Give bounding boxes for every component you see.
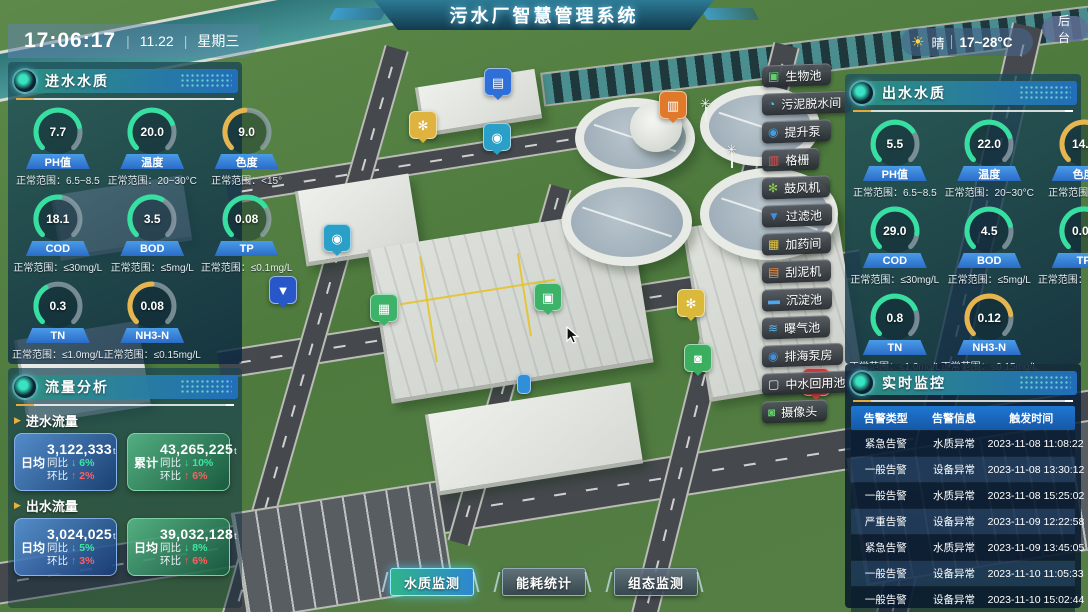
gauge-label: TP: [1052, 253, 1088, 268]
flow-tag: 日均: [19, 539, 47, 556]
compare-row: 同比↓6%: [47, 457, 112, 470]
facility-icon: ◔: [768, 98, 775, 110]
flow-body: 3,024,025t同比↓5%环比↑3%: [47, 526, 112, 568]
gauge-label: 色度: [1052, 166, 1088, 181]
panel-title: 出水水质: [866, 83, 946, 103]
flow-body: 3,122,333t同比↓6%环比↑2%: [47, 441, 112, 483]
gauge-温度: 22.0温度正常范围：20~30°C: [941, 116, 1038, 203]
gauge-label: PH值: [863, 166, 927, 181]
gauge-value: 9.0: [219, 104, 275, 160]
alarm-row: 一般告警设备异常2023-11-10 11:05:33: [851, 561, 1075, 586]
compare-value: 6%: [192, 470, 207, 483]
gauge-range: 正常范围：≤0.15mg/L: [104, 346, 201, 361]
flow-unit: t: [234, 446, 237, 456]
dewatering-marker[interactable]: ▤: [484, 68, 512, 96]
gauge-value: 0.08: [219, 191, 275, 247]
facility-icon: ◉: [768, 126, 778, 138]
outlet-gauges: 5.5PH值正常范围：6.5~8.522.0温度正常范围：20~30°C14.0…: [845, 112, 1081, 377]
dewatering-marker-icon: ▤: [492, 76, 504, 89]
filter-marker-icon: ▼: [277, 284, 290, 297]
compare-value: 3%: [79, 555, 94, 568]
flow-sections: ▶进水流量日均3,122,333t同比↓6%环比↑2%累计43,265,225t…: [8, 406, 242, 576]
section-header: 流量分析: [8, 368, 242, 402]
gauge-NH3-N: 0.08NH3-N正常范围：≤0.15mg/L: [104, 278, 201, 365]
inlet-gauges: 7.7PH值正常范围：6.5~8.520.0温度正常范围：20~30°C9.0色…: [8, 100, 242, 365]
section-header: 进水水质: [8, 62, 242, 96]
header-title-band: 污水厂智慧管理系统: [374, 0, 714, 30]
facility-label: 格栅: [785, 150, 809, 168]
alarm-row: 一般告警设备异常2023-11-10 15:02:44: [851, 587, 1075, 612]
bio-pool-marker[interactable]: ▣: [534, 283, 562, 311]
flow-tag: 累计: [132, 454, 160, 471]
alarm-time: 2023-11-10 15:02:44: [988, 594, 1075, 606]
down-arrow-icon: ↓: [71, 542, 76, 555]
gauge-range: 正常范围：≤1.0mg/L: [12, 346, 104, 361]
section-underline: [853, 400, 1073, 402]
facility-label: 摄像头: [781, 402, 817, 420]
flow-value: 3,024,025t: [47, 526, 112, 542]
alarm-time: 2023-11-08 15:25:02: [988, 490, 1075, 502]
admin-button[interactable]: 后台: [1042, 16, 1088, 42]
section-bullet-icon: [12, 68, 38, 94]
nav-button-label: 组态监测: [628, 573, 684, 592]
flow-cards: 日均3,024,025t同比↓5%环比↑3%日均39,032,128t同比↓8%…: [14, 518, 236, 576]
gauge-value: 7.7: [30, 104, 86, 160]
alarm-type: 紧急告警: [851, 436, 920, 451]
facility-icon: ▼: [768, 210, 780, 222]
column-alarm-time: 触发时间: [988, 410, 1075, 426]
facility-button-刮泥机[interactable]: ▤刮泥机: [762, 259, 831, 283]
facility-button-摄像头[interactable]: ◙摄像头: [762, 399, 827, 423]
alarm-info: 设备异常: [920, 462, 987, 477]
gauge-range: 正常范围：<15°: [211, 172, 282, 187]
clock-weekday: 星期三: [197, 31, 239, 51]
gauge-label: NH3-N: [957, 340, 1021, 355]
up-arrow-icon: ↑: [184, 555, 189, 568]
compare-label: 环比: [160, 555, 181, 568]
compare-label: 同比: [160, 457, 181, 470]
down-arrow-icon: ↓: [184, 457, 189, 470]
gauge-COD: 18.1COD正常范围：≤30mg/L: [12, 191, 104, 278]
flow-section-进水流量: ▶进水流量日均3,122,333t同比↓6%环比↑2%累计43,265,225t…: [8, 406, 242, 491]
compare-row: 同比↓5%: [47, 542, 112, 555]
gauge-value: 4.5: [961, 203, 1017, 259]
up-arrow-icon: ↑: [71, 555, 76, 568]
facility-button-提升泵[interactable]: ◉提升泵: [762, 119, 831, 143]
facility-button-沉淀池[interactable]: ▬沉淀池: [762, 287, 832, 311]
pump-marker[interactable]: ◉: [483, 123, 511, 151]
flow-value: 39,032,128t: [160, 526, 225, 542]
alarm-type: 一般告警: [851, 592, 920, 607]
gauge-BOD: 4.5BOD正常范围：≤5mg/L: [941, 203, 1038, 290]
alarm-type: 一般告警: [851, 566, 920, 581]
panel-title: 实时监控: [866, 373, 946, 393]
flow-analysis-panel: 流量分析 ▶进水流量日均3,122,333t同比↓6%环比↑2%累计43,265…: [8, 368, 242, 608]
gauge-range: 正常范围：6.5~8.5: [16, 172, 100, 187]
compare-label: 同比: [47, 457, 68, 470]
gauge-ring: 3.5: [124, 191, 180, 247]
compare-row: 环比↑6%: [160, 470, 225, 483]
blower-marker-2-icon: ✻: [686, 297, 697, 310]
facility-legend: ▣生物池◔污泥脱水间◉提升泵▥格栅✻鼓风机▼过滤池▦加药间▤刮泥机▬沉淀池≋曝气…: [762, 62, 855, 429]
camera-marker-icon: ◙: [694, 352, 702, 365]
realtime-monitor-panel: 实时监控 告警类型 告警信息 触发时间 紧急告警水质异常2023-11-08 1…: [845, 364, 1081, 608]
flow-body: 43,265,225t同比↓10%环比↑6%: [160, 441, 225, 483]
gauge-label: TN: [863, 340, 927, 355]
compare-row: 环比↑6%: [160, 555, 225, 568]
facility-icon: ≋: [768, 322, 778, 334]
alarm-time: 2023-11-09 12:22:58: [988, 516, 1075, 528]
compare-row: 同比↓10%: [160, 457, 225, 470]
alarm-info: 水质异常: [920, 436, 987, 451]
facility-button-格栅[interactable]: ▥格栅: [762, 148, 819, 172]
page-title: 污水厂智慧管理系统: [450, 2, 639, 28]
alarm-row: 一般告警设备异常2023-11-08 13:30:12: [851, 457, 1075, 482]
blower-marker-2[interactable]: ✻: [677, 289, 705, 317]
gauge-range: 正常范围：≤30mg/L: [13, 259, 102, 274]
gauge-range: 正常范围：6.5~8.5: [853, 184, 937, 199]
gauge-温度: 20.0温度正常范围：20~30°C: [104, 104, 201, 191]
blower-marker-icon: ✻: [418, 119, 429, 132]
flow-card-累计: 累计43,265,225t同比↓10%环比↑6%: [127, 433, 230, 491]
weather-condition: 晴: [931, 33, 944, 52]
facility-button-曝气池[interactable]: ≋曝气池: [762, 315, 830, 339]
gauge-label: BOD: [120, 241, 184, 256]
flow-unit: t: [113, 446, 116, 456]
gauge-ring: 7.7: [30, 104, 86, 160]
column-alarm-type: 告警类型: [851, 410, 920, 426]
compare-value: 6%: [79, 457, 94, 470]
section-bullet-icon: [12, 374, 38, 400]
section-header: 出水水质: [845, 74, 1081, 108]
gauge-range: 正常范围：20~30°C: [108, 172, 197, 187]
gauge-value: 29.0: [867, 203, 923, 259]
gauge-value: 18.1: [30, 191, 86, 247]
compare-value: 8%: [192, 542, 207, 555]
gauge-BOD: 3.5BOD正常范围：≤5mg/L: [104, 191, 201, 278]
facility-label: 污泥脱水间: [781, 93, 841, 112]
flow-unit: t: [113, 531, 116, 541]
alarm-row: 严重告警设备异常2023-11-09 12:22:58: [851, 509, 1075, 534]
alarm-type: 一般告警: [851, 462, 920, 477]
alarm-row: 一般告警水质异常2023-11-08 15:25:02: [851, 483, 1075, 508]
compare-label: 环比: [160, 470, 181, 483]
facility-button-过滤池[interactable]: ▼过滤池: [762, 203, 832, 227]
divider: [951, 35, 952, 49]
section-bar: 流量分析: [29, 375, 238, 399]
admin-button-label: 后台: [1058, 12, 1072, 46]
gauge-value: 5.5: [867, 116, 923, 172]
gauge-PH值: 5.5PH值正常范围：6.5~8.5: [849, 116, 941, 203]
gauge-label: 温度: [120, 154, 184, 169]
weather-widget: ☀ 晴 17~28°C: [901, 28, 1033, 56]
alarm-time: 2023-11-10 11:05:33: [988, 568, 1075, 580]
gauge-value: 0.12: [961, 290, 1017, 346]
gauge-label: 温度: [957, 166, 1021, 181]
gauge-ring: 0.8: [867, 290, 923, 346]
facility-button-污泥脱水间[interactable]: ◔污泥脱水间: [762, 91, 851, 116]
gauge-label: PH值: [26, 154, 90, 169]
nav-button-水质监测[interactable]: 水质监测: [390, 568, 474, 596]
alarm-info: 设备异常: [920, 566, 987, 581]
facility-icon: ◉: [768, 350, 778, 362]
alarm-time: 2023-11-08 11:08:22: [988, 438, 1075, 450]
header-decoration: [701, 8, 759, 20]
facility-label: 生物池: [785, 66, 821, 84]
compare-label: 同比: [160, 542, 181, 555]
gauge-value: 3.5: [124, 191, 180, 247]
gauge-ring: 0.08: [124, 278, 180, 334]
gauge-label: TP: [215, 241, 279, 256]
flow-card-日均: 日均3,122,333t同比↓6%环比↑2%: [14, 433, 117, 491]
alarm-info: 设备异常: [920, 592, 987, 607]
gauge-range: 正常范围：≤0.1mg/L: [201, 259, 293, 274]
gauge-ring: 5.5: [867, 116, 923, 172]
grille-marker[interactable]: ▥: [659, 91, 687, 119]
facility-icon: ▢: [768, 378, 779, 390]
compare-label: 同比: [47, 542, 68, 555]
gauge-label: COD: [863, 253, 927, 268]
gauge-ring: 0.07: [1056, 203, 1088, 259]
gauge-range: 正常范围：≤5mg/L: [948, 271, 1031, 286]
alarm-type: 紧急告警: [851, 540, 920, 555]
alarm-info: 水质异常: [920, 488, 987, 503]
gauge-ring: 4.5: [961, 203, 1017, 259]
pin-marker[interactable]: [517, 374, 531, 394]
alarm-row: 紧急告警水质异常2023-11-09 13:45:05: [851, 535, 1075, 560]
alarm-row: 紧急告警水质异常2023-11-08 11:08:22: [851, 431, 1075, 456]
section-header: 实时监控: [845, 364, 1081, 398]
compare-value: 6%: [192, 555, 207, 568]
triangle-icon: ▶: [14, 500, 21, 511]
compare-row: 环比↑2%: [47, 470, 112, 483]
facility-button-生物池[interactable]: ▣生物池: [762, 63, 831, 87]
nav-button-组态监测[interactable]: 组态监测: [614, 568, 698, 596]
facility-button-加药间[interactable]: ▦加药间: [762, 231, 831, 255]
gauge-ring: 29.0: [867, 203, 923, 259]
facility-button-排海泵房[interactable]: ◉排海泵房: [762, 343, 843, 368]
gauge-TP: 0.07TP正常范围：≤0.1mg/L: [1038, 203, 1088, 290]
column-alarm-info: 告警信息: [920, 410, 987, 426]
facility-icon: ▬: [768, 294, 780, 306]
facility-icon: ▦: [768, 238, 779, 250]
outlet-quality-panel: 出水水质 5.5PH值正常范围：6.5~8.522.0温度正常范围：20~30°…: [845, 74, 1081, 364]
facility-label: 刮泥机: [785, 262, 821, 280]
gauge-value: 14.0: [1056, 116, 1088, 172]
gauge-range: 正常范围：≤5mg/L: [111, 259, 194, 274]
flow-sub-label: 出水流量: [26, 496, 78, 515]
alarm-info: 设备异常: [920, 514, 987, 529]
flow-sub-header: ▶进水流量: [14, 410, 236, 430]
gauge-value: 0.07: [1056, 203, 1088, 259]
compare-label: 环比: [47, 470, 68, 483]
gauge-ring: 18.1: [30, 191, 86, 247]
gauge-TP: 0.08TP正常范围：≤0.1mg/L: [201, 191, 293, 278]
facility-label: 过滤池: [786, 206, 822, 224]
gauge-COD: 29.0COD正常范围：≤30mg/L: [849, 203, 941, 290]
gauge-value: 20.0: [124, 104, 180, 160]
bottom-nav: 水质监测能耗统计组态监测: [390, 568, 698, 596]
flow-value: 3,122,333t: [47, 441, 112, 457]
gauge-ring: 0.12: [961, 290, 1017, 346]
separator: |: [126, 33, 130, 49]
nav-button-label: 水质监测: [404, 573, 460, 592]
gauge-ring: 9.0: [219, 104, 275, 160]
down-arrow-icon: ↓: [71, 457, 76, 470]
flow-card-日均: 日均39,032,128t同比↓8%环比↑6%: [127, 518, 230, 576]
clock-widget: 17:06:17 | 11.22 | 星期三: [8, 24, 259, 58]
gauge-色度: 14.0色度正常范围：<15°: [1038, 116, 1088, 203]
facility-icon: ◙: [768, 406, 775, 418]
pump-marker-2[interactable]: ◉: [323, 224, 351, 252]
gauge-value: 22.0: [961, 116, 1017, 172]
facility-label: 沉淀池: [786, 290, 822, 308]
dashboard-root: ✳ ✳ ▤✻◉▥◉▼▦▣✻◙⚠ ▣生物池◔污泥脱水间◉提升泵▥格栅✻鼓风机▼过滤…: [0, 0, 1088, 612]
gauge-PH值: 7.7PH值正常范围：6.5~8.5: [12, 104, 104, 191]
gauge-range: 正常范围：20~30°C: [945, 184, 1034, 199]
facility-icon: ▣: [768, 70, 779, 82]
compare-row: 同比↓8%: [160, 542, 225, 555]
gauge-label: BOD: [957, 253, 1021, 268]
gauge-label: NH3-N: [120, 328, 184, 343]
alarm-info: 水质异常: [920, 540, 987, 555]
gauge-ring: 0.08: [219, 191, 275, 247]
dosing-marker-icon: ▦: [378, 302, 390, 315]
section-bar: 实时监控: [866, 371, 1077, 395]
pump-marker-icon: ◉: [491, 131, 502, 144]
gauge-ring: 14.0: [1056, 116, 1088, 172]
section-bullet-icon: [849, 370, 875, 396]
grille-marker-icon: ▥: [667, 99, 679, 112]
mouse-cursor: [566, 326, 582, 351]
facility-label: 排海泵房: [784, 346, 832, 365]
facility-label: 中水回用池: [785, 373, 845, 392]
nav-button-label: 能耗统计: [516, 573, 572, 592]
flow-tag: 日均: [19, 454, 47, 471]
gauge-label: TN: [26, 328, 90, 343]
facility-label: 提升泵: [784, 122, 820, 140]
up-arrow-icon: ↑: [71, 470, 76, 483]
gauge-色度: 9.0色度正常范围：<15°: [201, 104, 293, 191]
gauge-value: 0.3: [30, 278, 86, 334]
compare-label: 环比: [47, 555, 68, 568]
gauge-range: 正常范围：≤0.1mg/L: [1038, 271, 1088, 286]
compare-value: 10%: [192, 457, 213, 470]
gauge-label: COD: [26, 241, 90, 256]
panel-title: 流量分析: [29, 377, 109, 397]
up-arrow-icon: ↑: [184, 470, 189, 483]
gauge-value: 0.08: [124, 278, 180, 334]
flow-card-日均: 日均3,024,025t同比↓5%环比↑3%: [14, 518, 117, 576]
section-bar: 出水水质: [866, 81, 1077, 105]
separator: |: [184, 33, 188, 49]
gauge-ring: 0.3: [30, 278, 86, 334]
camera-marker[interactable]: ◙: [684, 344, 712, 372]
alarm-time: 2023-11-09 13:45:05: [988, 542, 1075, 554]
pump-marker-2-icon: ◉: [331, 232, 342, 245]
down-arrow-icon: ↓: [184, 542, 189, 555]
alarm-table-body: 紧急告警水质异常2023-11-08 11:08:22一般告警设备异常2023-…: [851, 431, 1075, 612]
facility-button-鼓风机[interactable]: ✻鼓风机: [762, 175, 830, 199]
clock-date: 11.22: [140, 33, 174, 49]
inlet-quality-panel: 进水水质 7.7PH值正常范围：6.5~8.520.0温度正常范围：20~30°…: [8, 62, 242, 364]
flow-sub-label: 进水流量: [26, 411, 78, 430]
gauge-value: 0.8: [867, 290, 923, 346]
section-bar: 进水水质: [29, 69, 238, 93]
flow-section-出水流量: ▶出水流量日均3,024,025t同比↓5%环比↑3%日均39,032,128t…: [8, 491, 242, 576]
gauge-ring: 20.0: [124, 104, 180, 160]
section-bullet-icon: [849, 80, 875, 106]
alarm-time: 2023-11-08 13:30:12: [988, 464, 1075, 476]
alarm-table-header: 告警类型 告警信息 触发时间: [851, 406, 1075, 430]
sun-icon: ☀: [911, 33, 924, 51]
alarm-type: 严重告警: [851, 514, 920, 529]
alarm-type: 一般告警: [851, 488, 920, 503]
flow-unit: t: [234, 531, 237, 541]
gauge-range: 正常范围：<15°: [1048, 184, 1088, 199]
gauge-ring: 22.0: [961, 116, 1017, 172]
facility-icon: ▤: [768, 266, 779, 278]
bio-pool-marker-icon: ▣: [542, 291, 554, 304]
flow-sub-header: ▶出水流量: [14, 495, 236, 515]
facility-label: 加药间: [785, 234, 821, 252]
compare-value: 5%: [79, 542, 94, 555]
facility-label: 曝气池: [784, 318, 820, 336]
facility-icon: ✻: [768, 182, 778, 194]
facility-label: 鼓风机: [784, 178, 820, 196]
flow-tag: 日均: [132, 539, 160, 556]
flow-body: 39,032,128t同比↓8%环比↑6%: [160, 526, 225, 568]
nav-button-能耗统计[interactable]: 能耗统计: [502, 568, 586, 596]
compare-value: 2%: [79, 470, 94, 483]
gauge-range: 正常范围：≤30mg/L: [850, 271, 939, 286]
panel-title: 进水水质: [29, 71, 109, 91]
weather-temp-range: 17~28°C: [959, 35, 1012, 50]
compare-row: 环比↑3%: [47, 555, 112, 568]
facility-icon: ▥: [768, 154, 779, 166]
blower-marker[interactable]: ✻: [409, 111, 437, 139]
facility-button-中水回用池[interactable]: ▢中水回用池: [762, 370, 855, 395]
header-decoration: [329, 8, 387, 20]
dosing-marker[interactable]: ▦: [370, 294, 398, 322]
filter-marker[interactable]: ▼: [269, 276, 297, 304]
gauge-label: 色度: [215, 154, 279, 169]
flow-value: 43,265,225t: [160, 441, 225, 457]
gauge-TN: 0.3TN正常范围：≤1.0mg/L: [12, 278, 104, 365]
flow-cards: 日均3,122,333t同比↓6%环比↑2%累计43,265,225t同比↓10…: [14, 433, 236, 491]
clock-time: 17:06:17: [24, 29, 116, 53]
triangle-icon: ▶: [14, 415, 21, 426]
